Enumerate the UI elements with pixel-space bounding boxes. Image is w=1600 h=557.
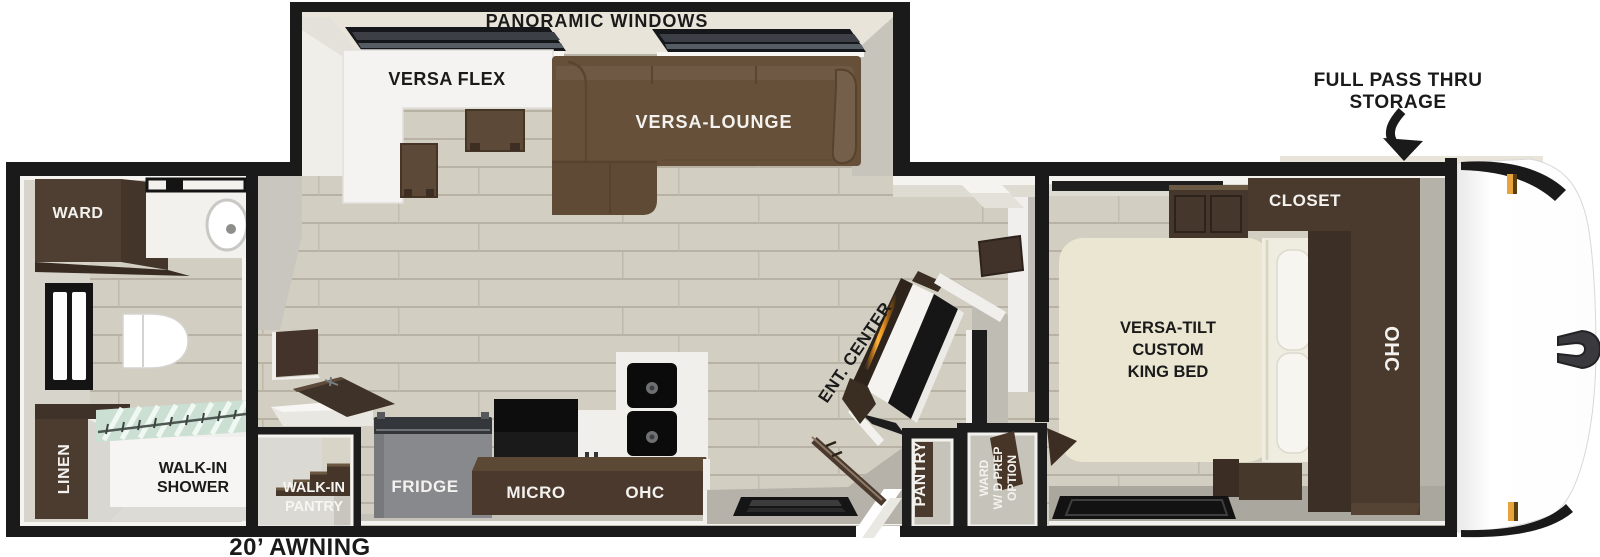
svg-text:FULL PASS THRU: FULL PASS THRU <box>1314 70 1483 91</box>
svg-text:WALK-IN: WALK-IN <box>159 460 227 477</box>
svg-text:CLOSET: CLOSET <box>1269 191 1341 210</box>
svg-text:CUSTOM: CUSTOM <box>1132 341 1203 359</box>
svg-text:MICRO: MICRO <box>506 483 565 502</box>
svg-text:20’ AWNING: 20’ AWNING <box>229 534 370 557</box>
svg-text:VERSA-TILT: VERSA-TILT <box>1120 319 1216 337</box>
svg-text:WARD: WARD <box>53 205 104 222</box>
svg-text:VERSA-LOUNGE: VERSA-LOUNGE <box>635 112 792 132</box>
svg-text:WARD: WARD <box>977 459 991 496</box>
svg-text:WALK-IN: WALK-IN <box>283 480 345 496</box>
svg-text:KING BED: KING BED <box>1128 363 1209 381</box>
svg-text:LINEN: LINEN <box>56 444 73 495</box>
svg-text:FRIDGE: FRIDGE <box>391 477 458 496</box>
svg-text:SHOWER: SHOWER <box>157 479 229 496</box>
svg-text:W/ D PREP: W/ D PREP <box>991 447 1005 510</box>
svg-text:PANTRY: PANTRY <box>912 441 929 506</box>
svg-text:OHC: OHC <box>625 483 664 502</box>
svg-text:PANTRY: PANTRY <box>285 499 343 515</box>
svg-text:VERSA FLEX: VERSA FLEX <box>388 69 505 89</box>
svg-text:OPTION: OPTION <box>1005 455 1019 501</box>
svg-text:PANORAMIC WINDOWS: PANORAMIC WINDOWS <box>486 11 709 31</box>
svg-text:OHC: OHC <box>1380 326 1402 372</box>
